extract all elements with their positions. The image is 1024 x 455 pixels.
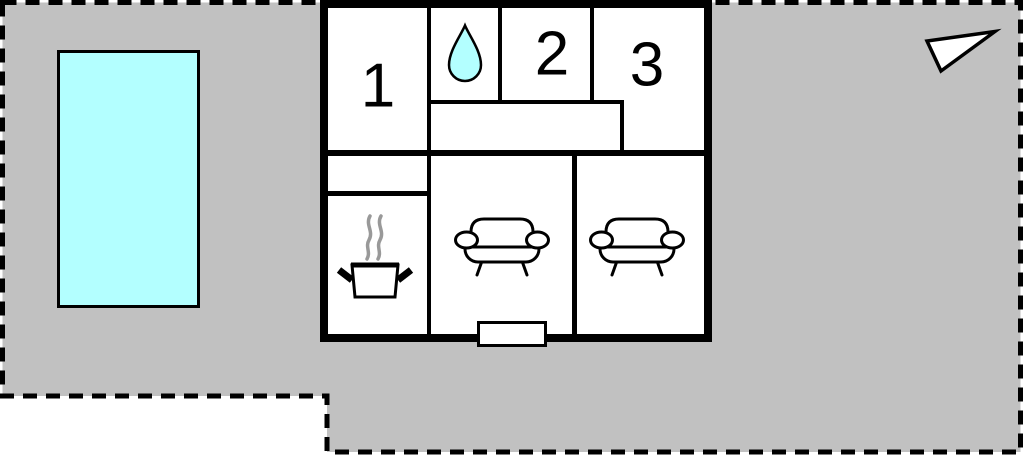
water-drop-icon (448, 24, 482, 83)
swimming-pool (57, 50, 200, 308)
outer-wall-top (320, 0, 712, 8)
sofa-icon (455, 218, 549, 276)
entrance-step (477, 321, 547, 347)
interior-wall (328, 191, 427, 196)
bedroom-3-label: 3 (630, 35, 664, 97)
house: 1 2 3 (320, 0, 712, 342)
outer-wall-right (704, 0, 712, 342)
pot-body (352, 265, 398, 297)
sofa-icon (590, 218, 684, 276)
interior-wall-separator (328, 150, 704, 156)
steam-line (367, 216, 371, 259)
interior-wall (427, 8, 431, 334)
outer-wall-left (320, 0, 328, 342)
interior-wall (590, 8, 594, 104)
bedroom-1-label: 1 (361, 56, 395, 118)
interior-wall-hallway-right (620, 100, 624, 156)
interior-wall-hallway-top (427, 100, 624, 104)
steam-line (378, 216, 382, 259)
bedroom-2-label: 2 (535, 24, 569, 86)
floor-plan: 1 2 3 (0, 0, 1024, 455)
interior-wall (572, 156, 577, 334)
interior-wall (498, 8, 502, 104)
cooking-pot-icon (334, 213, 416, 299)
